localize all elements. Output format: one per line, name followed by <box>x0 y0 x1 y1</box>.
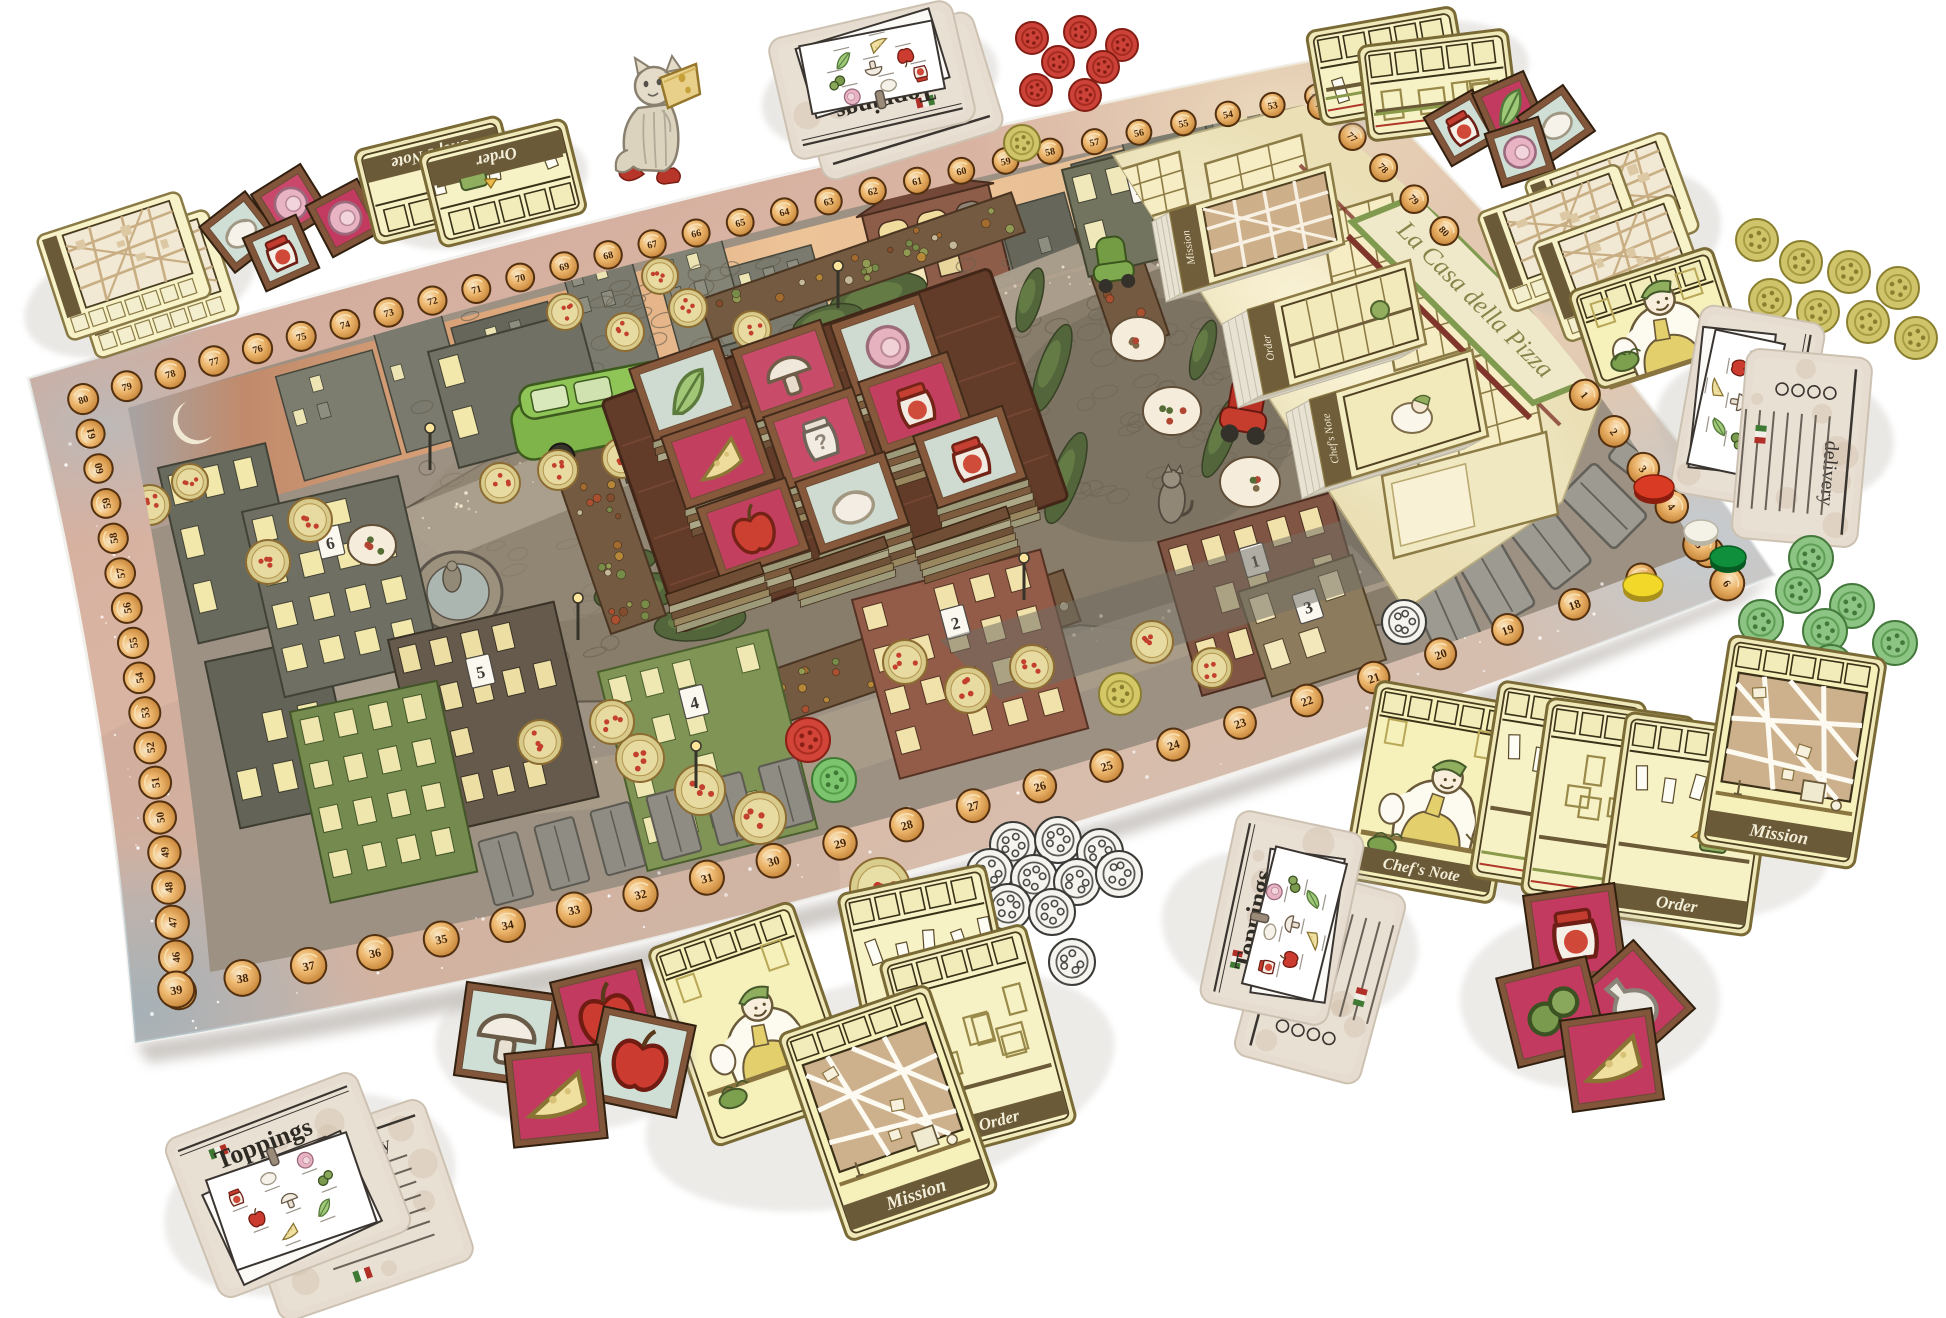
svg-text:47: 47 <box>167 916 180 929</box>
svg-text:46: 46 <box>170 951 183 964</box>
svg-text:39: 39 <box>169 982 183 998</box>
svg-text:38: 38 <box>235 970 249 986</box>
svg-text:50: 50 <box>154 811 167 824</box>
svg-text:51: 51 <box>150 776 163 789</box>
svg-text:48: 48 <box>163 881 176 894</box>
svg-text:52: 52 <box>145 741 158 754</box>
svg-text:53: 53 <box>1267 100 1279 113</box>
svg-text:49: 49 <box>159 846 172 859</box>
svg-text:54: 54 <box>1222 109 1234 122</box>
